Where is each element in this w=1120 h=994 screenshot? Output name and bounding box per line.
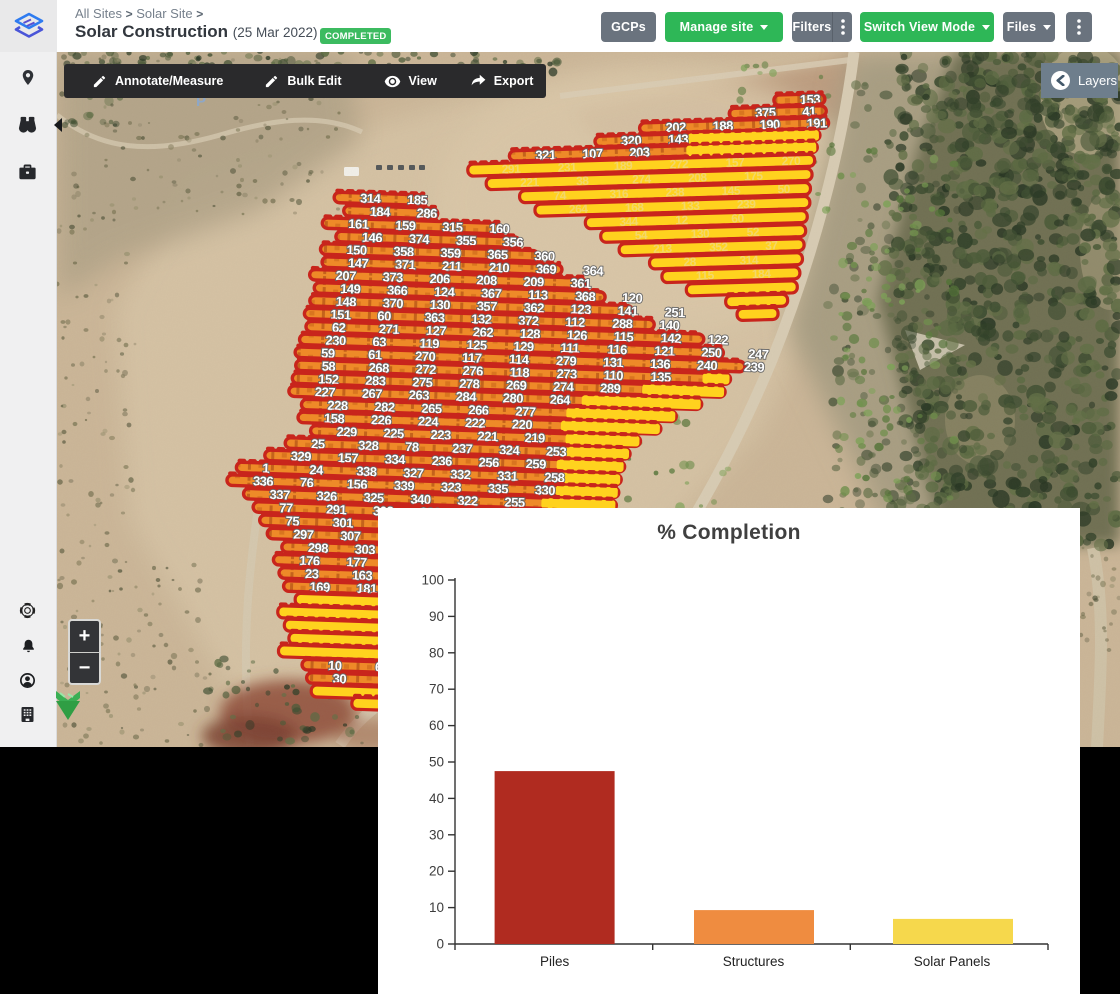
svg-text:40: 40 bbox=[429, 791, 444, 806]
svg-text:Structures: Structures bbox=[723, 954, 785, 969]
svg-text:30: 30 bbox=[429, 827, 444, 842]
svg-text:264: 264 bbox=[569, 202, 589, 217]
svg-text:100: 100 bbox=[421, 573, 444, 588]
svg-text:20: 20 bbox=[429, 864, 444, 879]
svg-text:80: 80 bbox=[429, 645, 444, 660]
svg-text:70: 70 bbox=[429, 682, 444, 697]
svg-text:10: 10 bbox=[429, 900, 444, 915]
svg-text:60: 60 bbox=[429, 718, 444, 733]
svg-text:Solar Panels: Solar Panels bbox=[914, 954, 991, 969]
svg-text:90: 90 bbox=[429, 609, 444, 624]
svg-text:50: 50 bbox=[429, 755, 444, 770]
svg-text:239: 239 bbox=[744, 359, 765, 375]
svg-text:Piles: Piles bbox=[540, 954, 570, 969]
svg-text:0: 0 bbox=[436, 937, 444, 952]
